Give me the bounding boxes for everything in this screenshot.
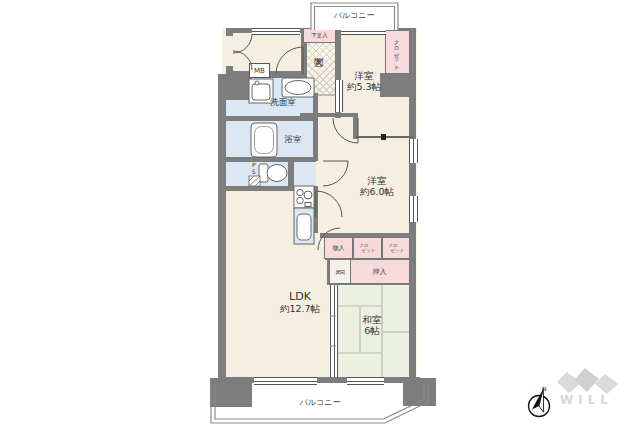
western-room-1-label: 洋室約5.3帖 xyxy=(334,70,394,93)
balcony-bottom-label: バルコニー xyxy=(290,398,350,408)
floor-plan: 下足入 クロゼット 物入 クロゼット クロゼット 押入 床間 MB xyxy=(0,0,640,427)
pipe-space-label: PS xyxy=(250,161,257,175)
ldk-label: LDK 約12.7帖 xyxy=(260,290,340,315)
western-room-2-label: 洋室約6.0帖 xyxy=(347,175,407,198)
japanese-room-label: 和室6帖 xyxy=(342,314,402,337)
plan-linework xyxy=(0,0,640,427)
washroom-label: 洗面室 xyxy=(253,97,313,107)
bathroom-label: 浴室 xyxy=(273,134,313,144)
balcony-top-label: バルコニー xyxy=(324,11,384,21)
entrance-label: 玄関 xyxy=(313,50,324,52)
compass-north-label: N xyxy=(542,385,547,392)
logo-wordmark: WILL xyxy=(560,393,613,407)
logo-diamonds xyxy=(557,368,618,394)
